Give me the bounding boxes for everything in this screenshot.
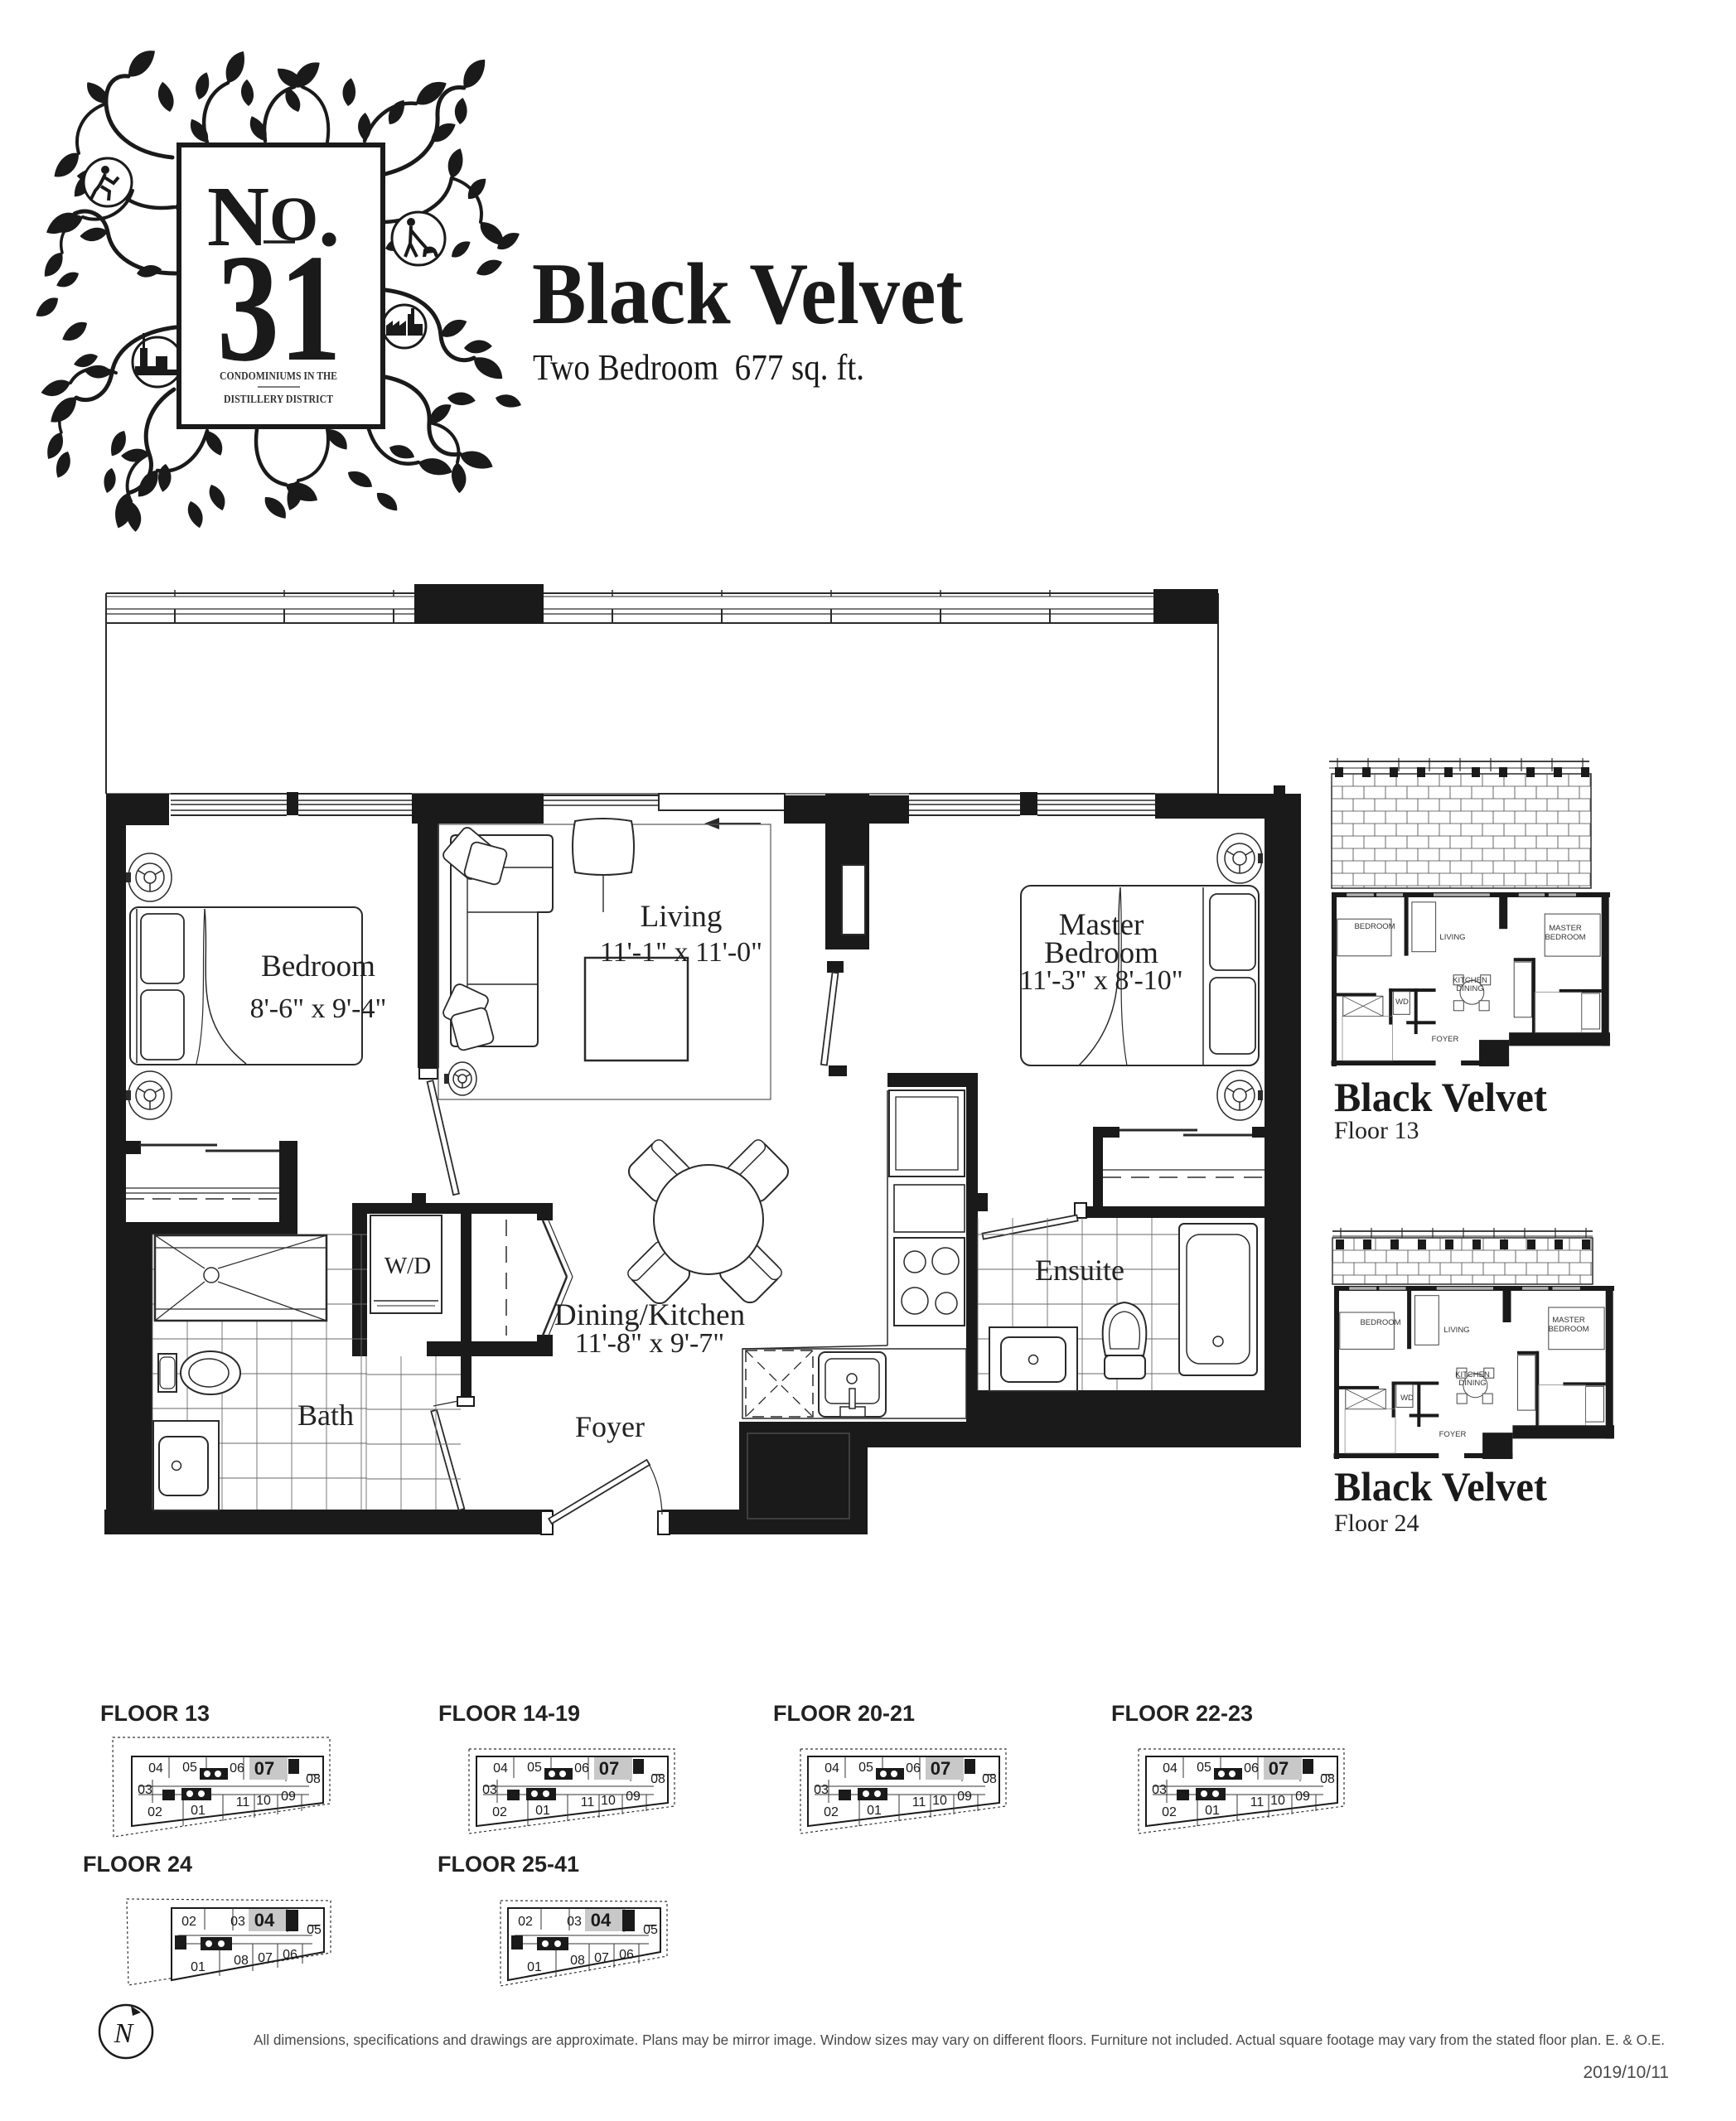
svg-text:Dining/Kitchen: Dining/Kitchen: [554, 1298, 745, 1332]
svg-text:FLOOR 13: FLOOR 13: [100, 1701, 210, 1726]
svg-text:Floor 13: Floor 13: [1334, 1117, 1419, 1144]
svg-text:Two Bedroom 677 sq. ft.: Two Bedroom 677 sq. ft.: [533, 347, 864, 388]
svg-text:11: 11: [236, 1795, 250, 1809]
svg-text:04: 04: [1163, 1761, 1177, 1776]
svg-text:11'-1" x 11'-0": 11'-1" x 11'-0": [600, 937, 762, 968]
svg-text:02: 02: [147, 1805, 162, 1819]
svg-text:2019/10/11: 2019/10/11: [1583, 2063, 1669, 2082]
svg-text:02: 02: [824, 1805, 839, 1819]
svg-text:07: 07: [599, 1758, 619, 1779]
svg-text:FOYER: FOYER: [1439, 1430, 1467, 1439]
svg-text:Foyer: Foyer: [575, 1410, 645, 1443]
svg-text:04: 04: [591, 1910, 612, 1930]
svg-text:07: 07: [594, 1951, 609, 1965]
svg-text:LIVING: LIVING: [1439, 933, 1465, 942]
svg-text:FLOOR 22-23: FLOOR 22-23: [1111, 1701, 1253, 1726]
svg-text:WD: WD: [1395, 998, 1409, 1007]
svg-text:CONDOMINIUMS IN THE: CONDOMINIUMS IN THE: [220, 370, 337, 383]
svg-text:02: 02: [492, 1805, 507, 1819]
svg-text:04: 04: [254, 1910, 275, 1930]
svg-text:01: 01: [527, 1960, 542, 1974]
svg-text:04: 04: [148, 1761, 163, 1776]
svg-text:06: 06: [574, 1761, 589, 1776]
svg-text:06: 06: [230, 1761, 244, 1776]
svg-text:08: 08: [234, 1954, 249, 1968]
svg-text:01: 01: [191, 1804, 206, 1818]
svg-text:03: 03: [814, 1783, 829, 1797]
svg-text:Floor 24: Floor 24: [1334, 1510, 1419, 1537]
svg-text:N: N: [114, 2018, 135, 2049]
svg-text:02: 02: [1162, 1805, 1177, 1819]
svg-text:09: 09: [957, 1790, 972, 1804]
svg-text:09: 09: [281, 1790, 296, 1804]
svg-text:01: 01: [535, 1804, 550, 1818]
svg-text:10: 10: [601, 1794, 616, 1808]
svg-text:FLOOR 14-19: FLOOR 14-19: [438, 1701, 580, 1726]
svg-text:05: 05: [182, 1761, 197, 1775]
svg-text:Living: Living: [641, 900, 723, 934]
svg-text:07: 07: [258, 1951, 273, 1965]
svg-text:02: 02: [181, 1915, 196, 1929]
svg-text:W/D: W/D: [384, 1253, 431, 1279]
svg-text:01: 01: [867, 1804, 882, 1818]
svg-text:31: 31: [217, 223, 341, 394]
svg-text:Black Velvet: Black Velvet: [1334, 1463, 1547, 1510]
svg-text:Ensuite: Ensuite: [1035, 1254, 1124, 1287]
svg-text:11: 11: [581, 1795, 595, 1809]
svg-text:BEDROOM: BEDROOM: [1545, 933, 1585, 942]
svg-text:Black Velvet: Black Velvet: [532, 245, 963, 342]
svg-text:BEDROOM: BEDROOM: [1548, 1325, 1589, 1334]
svg-text:06: 06: [906, 1761, 921, 1776]
svg-text:8'-6" x 9'-4": 8'-6" x 9'-4": [250, 993, 387, 1024]
svg-text:WD: WD: [1400, 1394, 1414, 1403]
svg-text:02: 02: [518, 1915, 533, 1929]
svg-text:04: 04: [824, 1761, 839, 1776]
svg-text:03: 03: [138, 1783, 152, 1797]
svg-text:07: 07: [1269, 1758, 1289, 1779]
svg-text:09: 09: [626, 1790, 641, 1804]
svg-text:10: 10: [932, 1794, 947, 1808]
svg-text:09: 09: [1295, 1790, 1310, 1804]
svg-text:04: 04: [493, 1761, 508, 1776]
svg-text:06: 06: [1244, 1761, 1259, 1776]
svg-text:05: 05: [1197, 1761, 1211, 1775]
svg-text:08: 08: [570, 1954, 585, 1968]
svg-text:10: 10: [1270, 1794, 1285, 1808]
svg-text:07: 07: [931, 1758, 950, 1779]
svg-text:06: 06: [619, 1948, 634, 1962]
svg-text:DISTILLERY DISTRICT: DISTILLERY DISTRICT: [224, 394, 334, 406]
svg-text:DINING: DINING: [1456, 984, 1483, 993]
svg-text:05: 05: [527, 1761, 542, 1775]
svg-text:01: 01: [1205, 1804, 1220, 1818]
svg-text:Black Velvet: Black Velvet: [1334, 1074, 1547, 1120]
svg-text:11'-3" x 8'-10": 11'-3" x 8'-10": [1019, 965, 1182, 996]
svg-text:07: 07: [254, 1758, 274, 1779]
svg-text:01: 01: [191, 1960, 206, 1974]
svg-text:03: 03: [567, 1915, 582, 1929]
svg-text:BEDROOM: BEDROOM: [1354, 922, 1395, 931]
svg-text:10: 10: [256, 1794, 271, 1808]
svg-text:DINING: DINING: [1458, 1379, 1486, 1388]
svg-text:Bath: Bath: [297, 1399, 354, 1432]
svg-text:LIVING: LIVING: [1443, 1326, 1469, 1335]
svg-text:11: 11: [1250, 1795, 1265, 1809]
svg-text:06: 06: [283, 1948, 297, 1962]
svg-text:BEDROOM: BEDROOM: [1360, 1318, 1400, 1327]
svg-text:05: 05: [858, 1761, 873, 1775]
svg-text:03: 03: [482, 1783, 497, 1797]
svg-text:FLOOR 24: FLOOR 24: [83, 1852, 192, 1877]
svg-text:All dimensions, specifications: All dimensions, specifications and drawi…: [254, 2032, 1665, 2048]
svg-text:03: 03: [230, 1915, 245, 1929]
svg-text:11'-8" x 9'-7": 11'-8" x 9'-7": [575, 1328, 724, 1359]
svg-text:FOYER: FOYER: [1432, 1035, 1459, 1044]
svg-text:MASTER: MASTER: [1549, 924, 1582, 933]
svg-text:Bedroom: Bedroom: [261, 949, 375, 983]
svg-text:FLOOR 25-41: FLOOR 25-41: [438, 1852, 579, 1877]
svg-text:FLOOR 20-21: FLOOR 20-21: [773, 1701, 915, 1726]
svg-text:11: 11: [912, 1795, 926, 1809]
svg-text:MASTER: MASTER: [1552, 1316, 1585, 1325]
svg-text:03: 03: [1152, 1783, 1167, 1797]
